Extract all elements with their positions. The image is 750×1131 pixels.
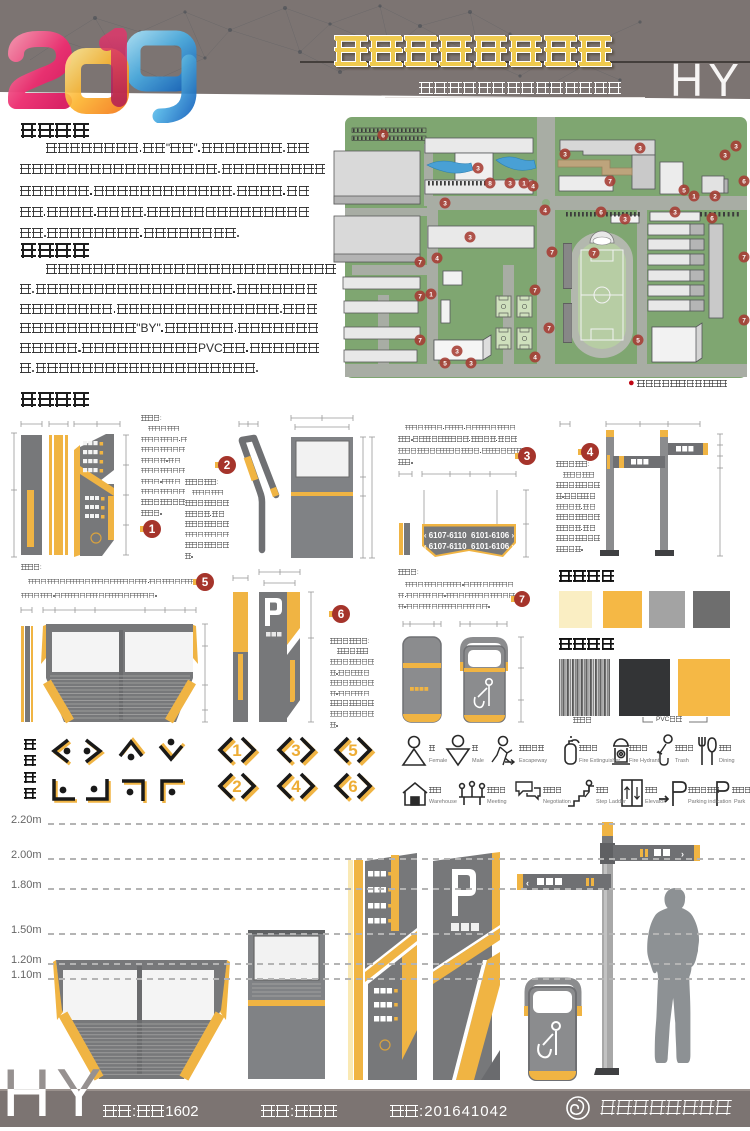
svg-text:4: 4 — [435, 255, 439, 262]
svg-text:‹: ‹ — [526, 878, 529, 888]
svg-text:3: 3 — [443, 200, 447, 207]
svg-text:Fire Extinguisher: Fire Extinguisher — [579, 758, 620, 764]
svg-text:7: 7 — [519, 595, 525, 606]
svg-text:6: 6 — [742, 178, 746, 185]
svg-text:3: 3 — [455, 348, 459, 355]
svg-text:1: 1 — [232, 741, 241, 760]
svg-text:8: 8 — [488, 180, 492, 187]
svg-text:3: 3 — [468, 234, 472, 241]
svg-text:6: 6 — [381, 132, 385, 139]
svg-text:1: 1 — [429, 291, 433, 298]
svg-text:4: 4 — [587, 446, 594, 459]
svg-text:7: 7 — [418, 337, 422, 344]
svg-text:1: 1 — [149, 523, 156, 536]
svg-text:Park: Park — [734, 799, 746, 805]
svg-text:7: 7 — [608, 178, 612, 185]
svg-text:3: 3 — [469, 360, 473, 367]
svg-text:Warehouse: Warehouse — [429, 799, 457, 805]
svg-text:7: 7 — [547, 325, 551, 332]
svg-text:6: 6 — [599, 209, 603, 216]
svg-text:6: 6 — [338, 608, 345, 621]
svg-text:3: 3 — [623, 216, 627, 223]
svg-text:6: 6 — [710, 215, 714, 222]
svg-text:Parking indication: Parking indication — [688, 799, 731, 805]
svg-text:7: 7 — [418, 259, 422, 266]
svg-text:4: 4 — [531, 183, 535, 190]
svg-text:Male: Male — [472, 758, 484, 764]
svg-text:Dining: Dining — [719, 758, 735, 764]
svg-text:2: 2 — [713, 193, 717, 200]
svg-text:3: 3 — [723, 152, 727, 159]
svg-text:‹ 6107-6110 6101-6106 ›: ‹ 6107-6110 6101-6106 › — [424, 542, 515, 551]
svg-text:Escapeway: Escapeway — [519, 758, 547, 764]
svg-text:3: 3 — [524, 450, 531, 463]
svg-text:3: 3 — [508, 180, 512, 187]
svg-text:3: 3 — [291, 741, 300, 760]
svg-text:7: 7 — [418, 293, 422, 300]
svg-text:3: 3 — [638, 145, 642, 152]
svg-text:3: 3 — [563, 151, 567, 158]
svg-text:6: 6 — [348, 777, 357, 796]
svg-text:5: 5 — [636, 337, 640, 344]
svg-text:5: 5 — [202, 576, 209, 589]
svg-text:Female: Female — [429, 758, 447, 764]
svg-text:Meeting: Meeting — [487, 799, 507, 805]
svg-text:‹ 6107-6110 6101-6106 ›: ‹ 6107-6110 6101-6106 › — [424, 531, 515, 540]
svg-text:7: 7 — [742, 254, 746, 261]
svg-text:2: 2 — [232, 777, 241, 796]
svg-text:Negotiation: Negotiation — [543, 799, 571, 805]
svg-text:7: 7 — [742, 317, 746, 324]
svg-text:5: 5 — [682, 187, 686, 194]
svg-text:Elevator: Elevator — [645, 799, 665, 805]
svg-text:3: 3 — [476, 165, 480, 172]
svg-text:1: 1 — [522, 180, 526, 187]
svg-text:4: 4 — [533, 354, 537, 361]
svg-text:Step Ladder: Step Ladder — [596, 799, 626, 805]
svg-text:7: 7 — [533, 287, 537, 294]
svg-text:1: 1 — [692, 193, 696, 200]
svg-text:5: 5 — [348, 741, 357, 760]
svg-text:3: 3 — [673, 209, 677, 216]
svg-text:4: 4 — [291, 777, 301, 796]
svg-text:7: 7 — [592, 250, 596, 257]
svg-text:5: 5 — [443, 360, 447, 367]
svg-text:4: 4 — [543, 207, 547, 214]
svg-text:Fire Hydrant: Fire Hydrant — [629, 758, 660, 764]
svg-text:3: 3 — [734, 143, 738, 150]
svg-text:2: 2 — [224, 459, 231, 472]
svg-text:Trash: Trash — [675, 758, 689, 764]
svg-text:7: 7 — [550, 249, 554, 256]
